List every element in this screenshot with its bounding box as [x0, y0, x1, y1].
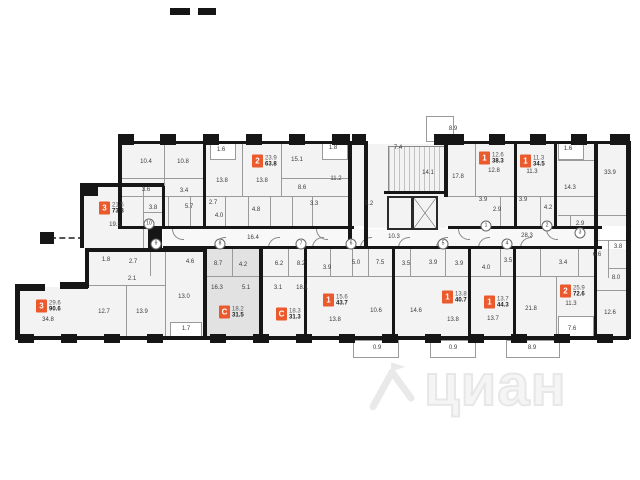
room-area-label: 33.9: [604, 170, 616, 176]
grid-marker: 8: [215, 239, 226, 250]
apartment-tag[interactable]: С 18.3 31.3: [276, 308, 301, 321]
room-area-label: 13.8: [216, 178, 228, 184]
room-area-label: 2.1: [128, 276, 136, 282]
room-area-label: 5.7: [185, 204, 193, 210]
room-area-label: 14.3: [564, 185, 576, 191]
room-area-label: 6.2: [275, 261, 283, 267]
apartment-rooms-badge: С: [219, 306, 230, 319]
grid-marker: 6: [346, 239, 357, 250]
grid-marker: 1: [481, 221, 492, 232]
room-area-label: 10.3: [388, 234, 400, 240]
room-area-label: 13.0: [178, 294, 190, 300]
room-area-label: 3.3: [310, 201, 318, 207]
apartment-area-total: 40.7: [455, 297, 467, 303]
room-area-label: 3.8: [149, 205, 157, 211]
apartment-rooms-badge: 1: [484, 296, 495, 309]
room-area-label: 17.8: [452, 174, 464, 180]
apartment-area-total: 73.8: [112, 208, 124, 214]
room-area-label: 3.9: [323, 265, 331, 271]
room-area-label: 13.8: [329, 317, 341, 323]
apartment-tag[interactable]: 1 15.6 43.7: [323, 294, 348, 307]
room-area-label: 3.9: [429, 260, 437, 266]
apartment-rooms-badge: 1: [323, 294, 334, 307]
apartment-tag[interactable]: 2 23.9 63.8: [252, 155, 277, 168]
room-area-label: 18.1: [296, 285, 308, 291]
apartment-rooms-badge: 3: [99, 202, 110, 215]
room-area-label: 1.6: [217, 147, 225, 153]
room-area-label: 1.6: [564, 146, 572, 152]
cian-watermark: циан: [366, 352, 567, 419]
room-area-label: 11.2: [330, 176, 341, 182]
apartment-area-total: 44.3: [497, 302, 509, 308]
cian-house-icon: [366, 360, 418, 412]
grid-marker: 4: [502, 239, 513, 250]
room-area-label: 3.4: [180, 188, 188, 194]
grid-marker: 10: [144, 219, 155, 230]
room-area-label: 16.3: [211, 285, 223, 291]
room-area-label: 19.5: [109, 222, 121, 228]
room-area-label: 28.3: [521, 233, 533, 239]
apartment-area-total: 72.6: [573, 291, 585, 297]
room-area-label: 12.8: [488, 168, 500, 174]
room-area-label: 10.6: [370, 308, 382, 314]
room-area-label: 7.5: [376, 260, 384, 266]
apartment-tag[interactable]: 1 13.8 40.7: [442, 291, 467, 304]
apartment-area-total: 34.5: [533, 161, 545, 167]
room-area-label: 3.9: [479, 197, 487, 203]
apartment-area-total: 63.8: [265, 161, 277, 167]
room-area-label: 8.7: [214, 261, 222, 267]
apartment-area-total: 43.7: [336, 300, 348, 306]
grid-marker: 9: [151, 239, 162, 250]
room-area-label: 2.9: [576, 221, 584, 227]
room-area-label: 3.8: [614, 244, 622, 250]
room-area-label: 13.7: [487, 316, 499, 322]
apartment-area-total: 90.6: [49, 306, 61, 312]
apartment-tag-selected[interactable]: С 18.2 31.5: [219, 306, 244, 319]
room-area-label: 4.6: [186, 259, 194, 265]
room-area-label: 8.9: [528, 345, 536, 351]
room-area-label: 4.8: [252, 207, 260, 213]
room-area-label: 0.9: [449, 345, 457, 351]
room-area-label: 4.2: [239, 262, 247, 268]
apartment-rooms-badge: 1: [520, 155, 531, 168]
room-area-label: 4.0: [482, 265, 490, 271]
room-area-label: 13.8: [256, 178, 268, 184]
room-area-label: 8.2: [297, 261, 305, 267]
grid-marker: 3: [575, 228, 586, 239]
room-area-label: 2.7: [129, 259, 137, 265]
room-area-label: 4.2: [544, 205, 552, 211]
room-area-label: 3.9: [519, 197, 527, 203]
room-area-label: 10.8: [177, 159, 189, 165]
room-area-label: 3.1: [274, 285, 282, 291]
room-area-label: 10.4: [140, 159, 152, 165]
apartment-tag[interactable]: 2 25.9 72.6: [560, 285, 585, 298]
apartment-area-total: 31.3: [289, 314, 301, 320]
room-area-label: 11.3: [526, 169, 537, 175]
room-area-label: 3.5: [402, 261, 410, 267]
room-area-label: 16.4: [247, 235, 259, 241]
room-area-label: 7.6: [568, 326, 576, 332]
room-area-label: 5.2: [365, 201, 373, 207]
apartment-area-total: 38.3: [492, 158, 504, 164]
room-area-label: 13.8: [447, 317, 459, 323]
room-area-label: 3.5: [504, 258, 512, 264]
apartment-rooms-badge: 1: [442, 291, 453, 304]
floorplan-image: 10.410.83.63.43.85.72.74.01.613.813.84.8…: [0, 0, 640, 480]
room-area-label: 5.1: [242, 285, 250, 291]
room-area-label: 34.8: [42, 317, 54, 323]
room-area-label: 4.0: [215, 213, 223, 219]
apartment-rooms-badge: 2: [252, 155, 263, 168]
room-area-label: 14.6: [410, 308, 422, 314]
room-area-label: 1.8: [102, 257, 110, 263]
room-area-label: 8.6: [298, 185, 306, 191]
room-area-label: 12.6: [604, 310, 616, 316]
apartment-rooms-badge: 3: [36, 300, 47, 313]
room-area-label: 13.9: [136, 309, 148, 315]
room-area-label: 21.8: [525, 306, 537, 312]
apartment-rooms-badge: 2: [560, 285, 571, 298]
apartment-rooms-badge: С: [276, 308, 287, 321]
room-area-label: 1.7: [182, 326, 190, 332]
room-area-label: 15.1: [291, 157, 303, 163]
room-area-label: 5.0: [352, 260, 360, 266]
apartment-area-total: 31.5: [232, 312, 244, 318]
grid-marker: 2: [542, 221, 553, 232]
watermark-text: циан: [424, 352, 567, 419]
apartment-tag[interactable]: 1 12.6 38.3: [479, 152, 504, 165]
grid-marker: 7: [296, 239, 307, 250]
room-area-label: 8.9: [449, 126, 457, 132]
room-area-label: 1.8: [329, 145, 337, 151]
apartment-rooms-badge: 1: [479, 152, 490, 165]
room-area-label: 3.4: [559, 260, 567, 266]
room-area-label: 12.7: [98, 309, 110, 315]
room-area-label: 0.9: [373, 345, 381, 351]
apartment-tag[interactable]: 3 29.6 90.6: [36, 300, 61, 313]
room-area-label: 3.9: [455, 261, 463, 267]
apartment-tag[interactable]: 1 13.7 44.3: [484, 296, 509, 309]
room-area-label: 8.0: [612, 275, 620, 281]
room-area-label: 7.4: [394, 145, 402, 151]
room-area-label: 11.3: [565, 301, 576, 307]
grid-marker: 5: [438, 239, 449, 250]
room-area-label: 3.6: [142, 187, 150, 193]
room-area-label: 6.6: [593, 252, 601, 258]
room-area-label: 2.9: [493, 207, 501, 213]
room-area-label: 14.1: [422, 170, 434, 176]
room-area-label: 2.7: [209, 200, 217, 206]
apartment-tag[interactable]: 1 11.3 34.5: [520, 155, 545, 168]
apartment-tag[interactable]: 3 21.5 73.8: [99, 202, 124, 215]
